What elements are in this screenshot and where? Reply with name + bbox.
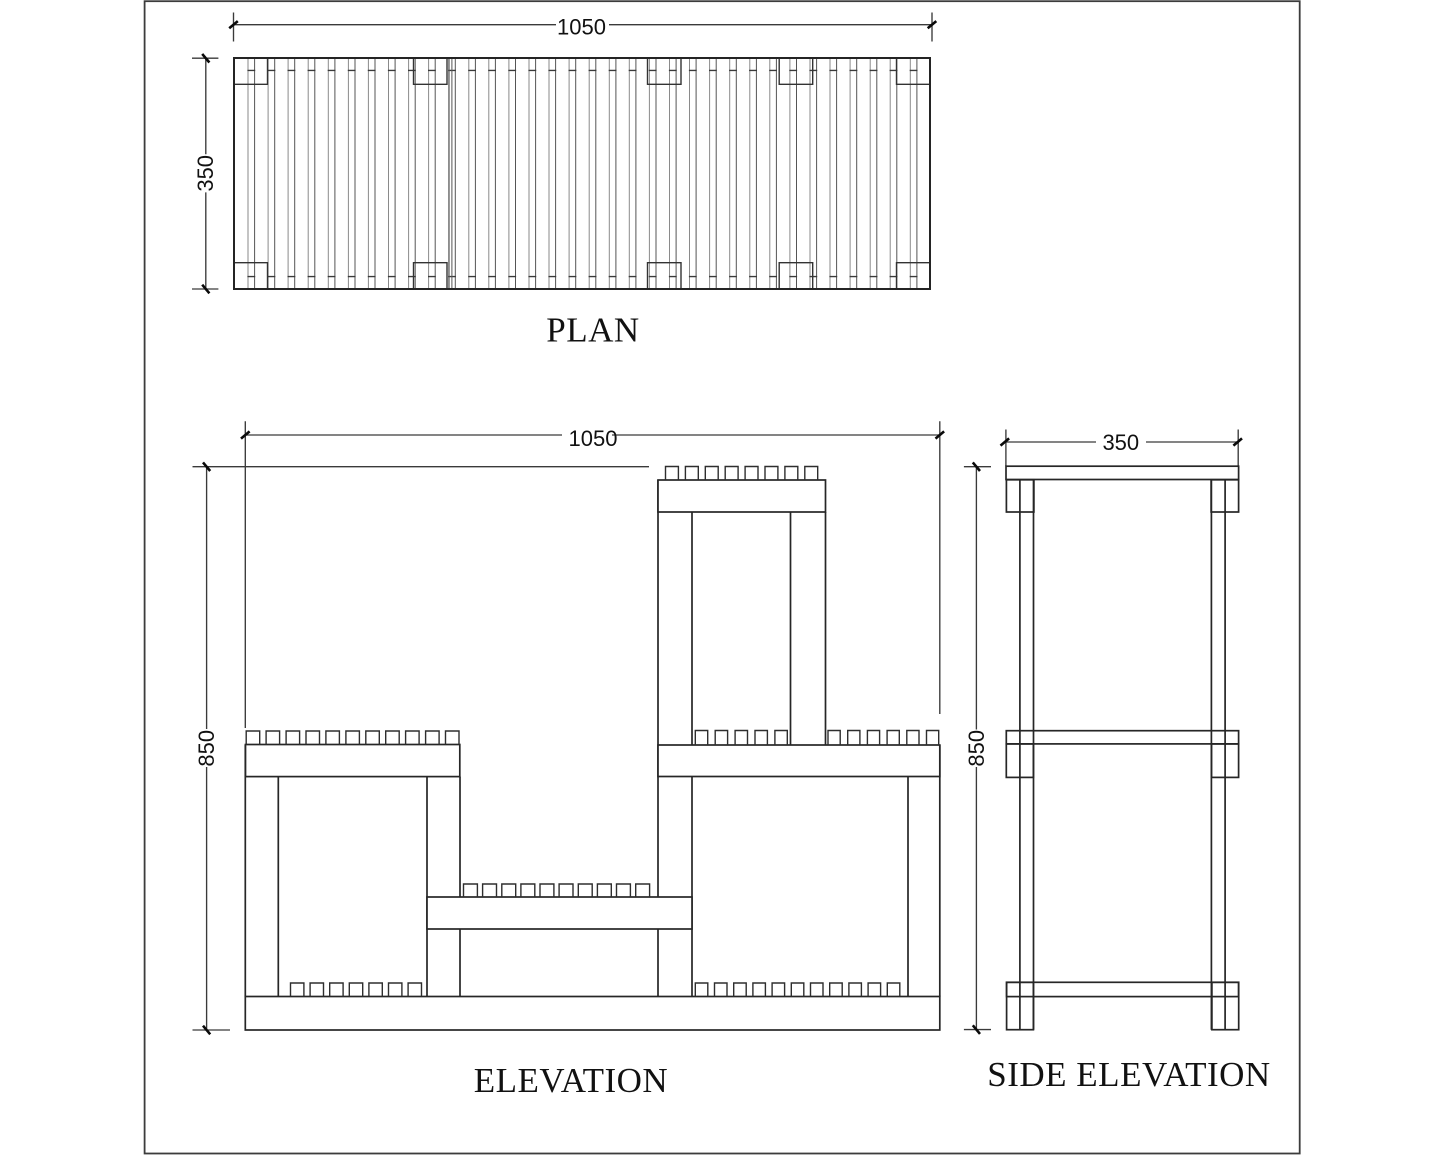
svg-text:350: 350 <box>193 155 218 192</box>
svg-text:350: 350 <box>1102 430 1139 455</box>
svg-text:PLAN: PLAN <box>546 311 639 350</box>
svg-text:SIDE ELEVATION: SIDE ELEVATION <box>987 1055 1270 1094</box>
svg-text:1050: 1050 <box>569 426 618 451</box>
svg-text:850: 850 <box>194 730 219 767</box>
svg-text:ELEVATION: ELEVATION <box>474 1061 668 1100</box>
svg-text:850: 850 <box>964 730 989 767</box>
svg-text:1050: 1050 <box>557 15 606 40</box>
